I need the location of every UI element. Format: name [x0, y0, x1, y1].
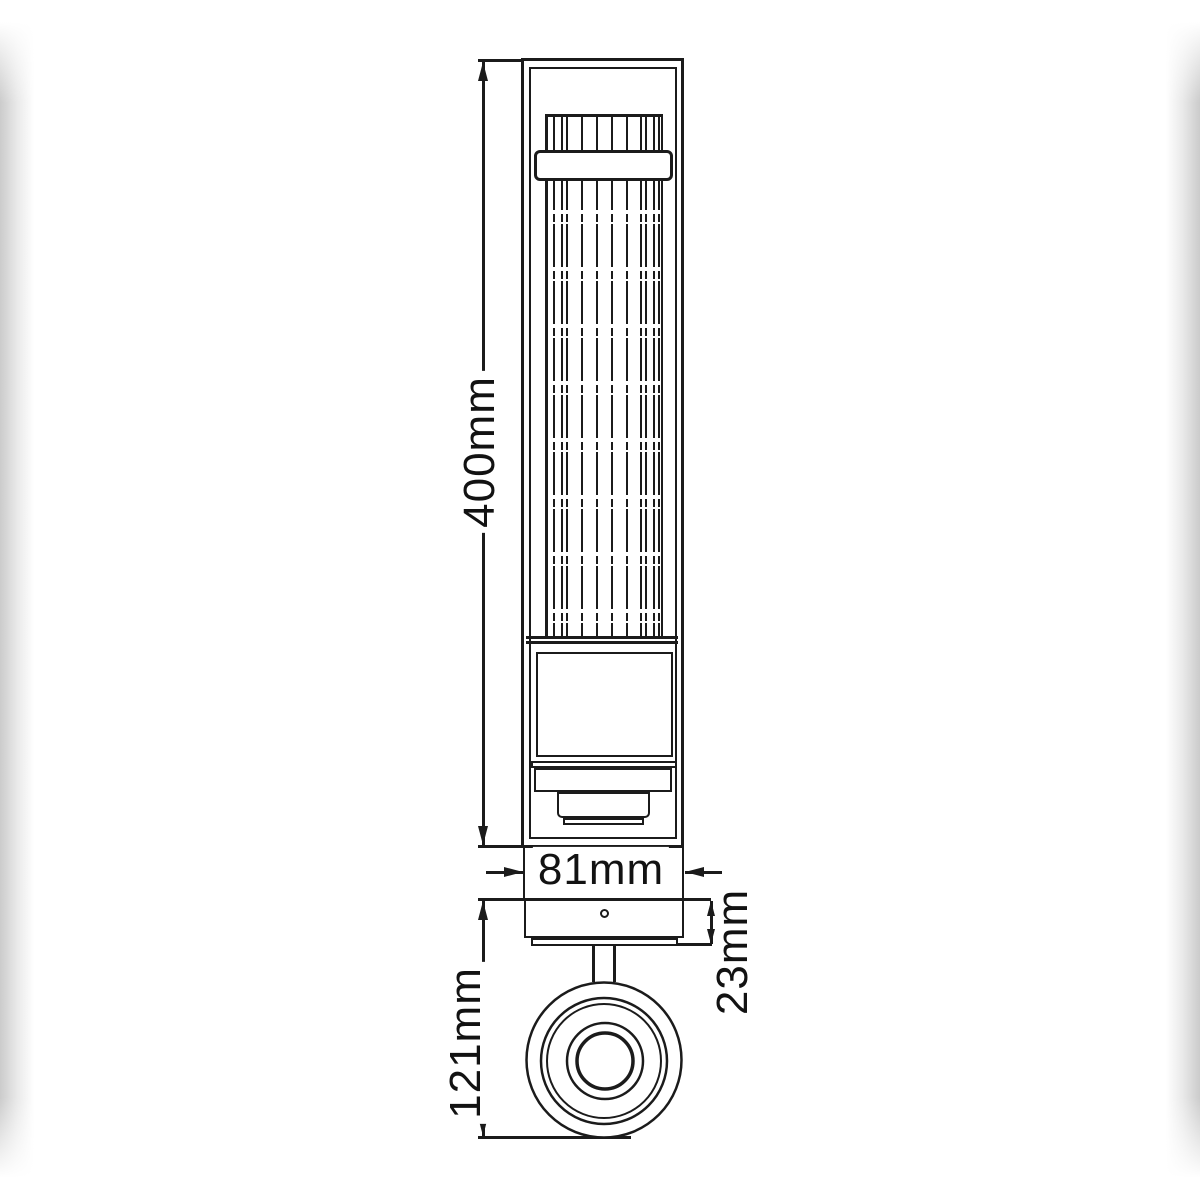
housing-lower-band [534, 768, 672, 792]
shade-end-view [515, 971, 693, 1149]
dim-width-arrow-left-icon [685, 867, 704, 877]
wall-plate [524, 899, 684, 938]
glass-tube-rib [658, 116, 660, 637]
glass-tube-rib [561, 116, 563, 637]
dim-label-width: 81mm [533, 847, 669, 893]
page-edge-shadow-right [1166, 22, 1200, 1178]
glass-tube-rib [653, 116, 655, 637]
glass-tube-rib [640, 116, 642, 637]
glass-tube-rib [596, 116, 598, 637]
glass-tube-left-edge [545, 114, 548, 638]
lamp-holder-base [563, 818, 644, 825]
wall-plate-lip [531, 938, 678, 946]
dim-depth-arrow-up-icon [478, 901, 488, 920]
shade-outer-circle [527, 983, 682, 1138]
tube-bottom-edge-2 [526, 641, 678, 644]
dim-width-arrow-right-icon [504, 867, 523, 877]
dim-width-ext-left [523, 848, 525, 899]
glass-tube-rib [645, 116, 647, 637]
housing-thin-bar [531, 761, 677, 768]
wall-plate-screw-hole [600, 909, 609, 918]
dim-label-plate-thickness: 23mm [710, 884, 756, 1020]
tube-bottom-edge-1 [526, 636, 678, 639]
dim-width-ext-right [682, 848, 684, 899]
glass-tube-right-edge [661, 114, 664, 638]
glass-tube-rib [581, 116, 583, 637]
dim-label-height: 400mm [457, 371, 503, 533]
dim-height-ext-bottom [478, 845, 522, 848]
glass-tube-rib [611, 116, 613, 637]
dim-height-arrow-down-icon [478, 826, 488, 845]
dim-label-depth: 121mm [443, 962, 489, 1124]
glass-tube-rib [566, 116, 568, 637]
dimension-drawing-canvas: 400mm 81mm 121mm 23mm [0, 0, 1200, 1200]
lamp-housing-box [536, 652, 673, 757]
glass-tube-rib [553, 116, 555, 637]
lamp-holder-protrusion [557, 792, 650, 818]
mounting-bracket-band [534, 150, 673, 181]
dim-height-arrow-up-icon [478, 62, 488, 81]
page-edge-shadow-left [0, 22, 34, 1178]
glass-tube-rib [626, 116, 628, 637]
